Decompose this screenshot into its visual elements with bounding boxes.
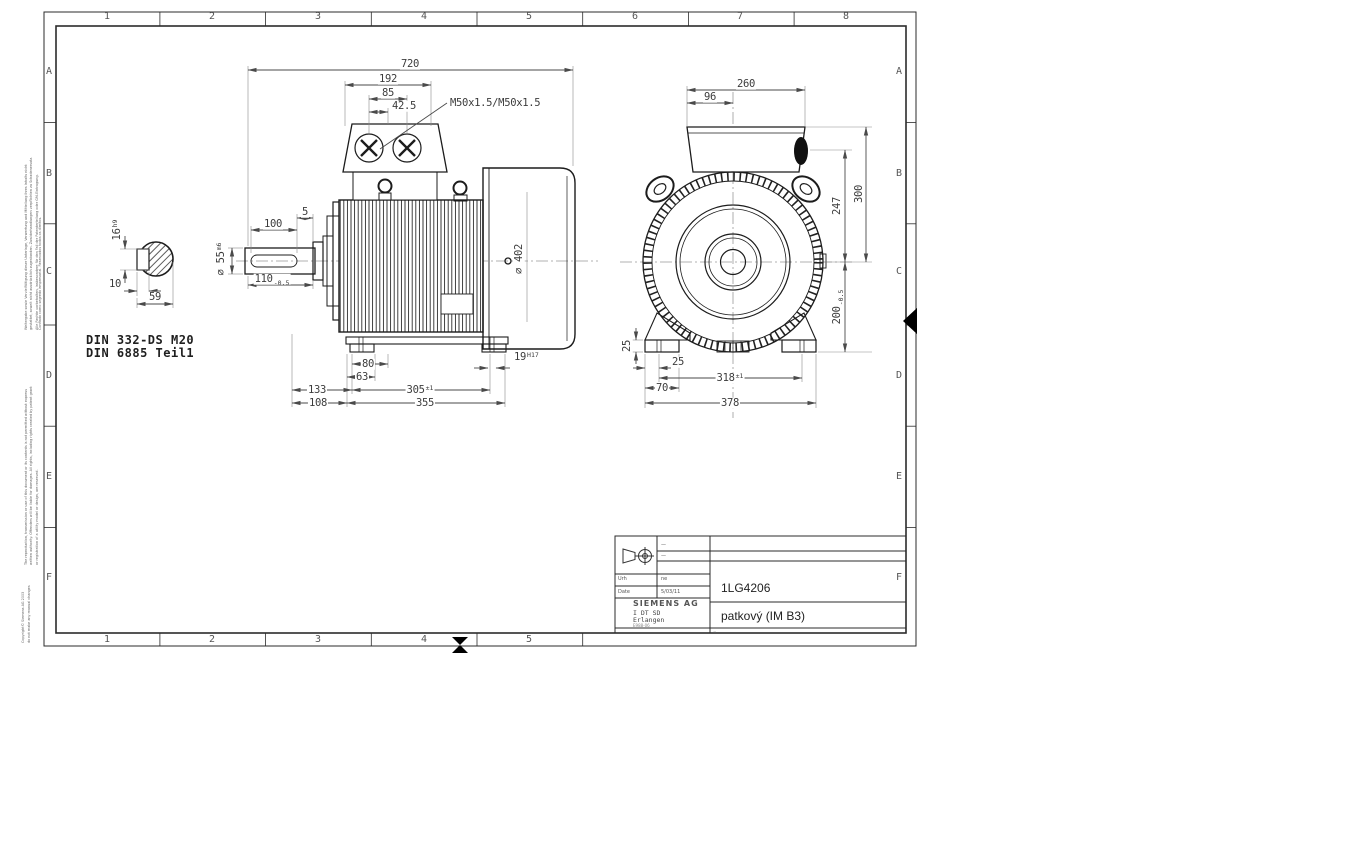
no-manual-changes-note: do not make any manual changes (27, 555, 32, 643)
titleblock-field1-label: Urh (618, 576, 627, 582)
dim-96: 96 (703, 92, 717, 103)
dim-108: 108 (308, 398, 328, 409)
revision-dash: — (661, 542, 666, 548)
mounting-designation: patkový (IM B3) (721, 609, 805, 623)
grid-col-label: 4 (421, 635, 427, 645)
dim-70: 70 (655, 383, 669, 394)
dim-shaft-height: 200-0.5 (832, 289, 843, 326)
part-number: 1LG4206 (721, 581, 770, 595)
grid-col-label: 6 (632, 12, 638, 22)
dim-63: 63 (355, 372, 369, 383)
grid-row-label: E (896, 472, 902, 482)
grid-col-label: 3 (315, 12, 321, 22)
form-code: E988-06 (633, 623, 650, 628)
dim-247: 247 (832, 196, 843, 216)
grid-col-label: 8 (843, 12, 849, 22)
dim-192: 192 (378, 74, 398, 85)
dim-100: 100 (263, 219, 283, 230)
corner-mark: = (713, 629, 716, 634)
shaft-key-detail-view (120, 236, 173, 308)
grid-col-label: 2 (209, 635, 215, 645)
revision-dash: — (661, 553, 666, 559)
drawing-canvas (0, 0, 1359, 859)
grid-col-label: 1 (104, 12, 110, 22)
motor-front-view (620, 92, 852, 418)
grid-col-label: 1 (104, 635, 110, 645)
dim-80: 80 (361, 359, 375, 370)
motor-side-view (236, 124, 598, 352)
grid-row-label: A (896, 67, 902, 77)
grid-col-label: 4 (421, 12, 427, 22)
dim-720: 720 (400, 59, 420, 70)
dim-5: 5 (301, 207, 309, 218)
dim-foot-hole: 19H17 (513, 352, 540, 363)
grid-row-label: B (896, 169, 902, 179)
dim-key-width: 16h9 (112, 219, 123, 242)
dim-305: 305±1 (406, 385, 435, 396)
company-name: SIEMENS AG (633, 599, 699, 608)
thread-callout: M50x1.5/M50x1.5 (449, 98, 541, 109)
din-note-line1: DIN 332-DS M20 (86, 333, 194, 347)
grid-row-label: B (46, 169, 52, 179)
dim-133: 133 (307, 385, 327, 396)
extension-lines (228, 66, 872, 408)
grid-row-label: D (46, 371, 52, 381)
dim-355: 355 (415, 398, 435, 409)
titleblock-field1-value: ne (661, 576, 667, 582)
grid-row-label: F (896, 573, 902, 583)
dim-25-horizontal: 25 (671, 357, 685, 368)
dim-378: 378 (720, 398, 740, 409)
dim-300: 300 (854, 184, 865, 204)
legal-text-english: The reproduction, transmission or use of… (24, 385, 40, 565)
grid-row-label: A (46, 67, 52, 77)
dim-59: 59 (148, 292, 162, 303)
copyright-text: Copyright© Siemens AG 2003 (21, 555, 26, 643)
grid-col-label: 5 (526, 12, 532, 22)
grid-row-label: C (896, 267, 902, 277)
dim-frame-diameter: ⌀ 402 (514, 243, 525, 275)
dim-42-5: 42.5 (391, 101, 417, 112)
grid-row-label: F (46, 573, 52, 583)
legal-text-portuguese: Confiado como segredo empresarial. Reser… (38, 154, 43, 330)
first-angle-projection-icon (623, 547, 654, 565)
dim-260: 260 (736, 79, 756, 90)
engineering-drawing-page: { "sheet": { "cols_top": ["1","2","3","4… (0, 0, 1359, 859)
titleblock-field2-value: 5/03/11 (661, 589, 680, 595)
din-note-line2: DIN 6885 Teil1 (86, 346, 194, 360)
grid-col-label: 5 (526, 635, 532, 645)
dim-10: 10 (108, 279, 122, 290)
dim-shaft-diameter: ⌀ 55m6 (216, 242, 227, 277)
grid-row-label: C (46, 267, 52, 277)
grid-col-label: 2 (209, 12, 215, 22)
dim-25-vertical: 25 (622, 339, 633, 353)
grid-row-label: E (46, 472, 52, 482)
dim-318: 318±1 (716, 373, 745, 384)
grid-col-label: 3 (315, 635, 321, 645)
grid-row-label: D (896, 371, 902, 381)
grid-col-label: 7 (737, 12, 743, 22)
dim-85: 85 (381, 88, 395, 99)
titleblock-field2-label: Date (618, 589, 630, 595)
dim-110: 110-0.5 (254, 274, 291, 285)
